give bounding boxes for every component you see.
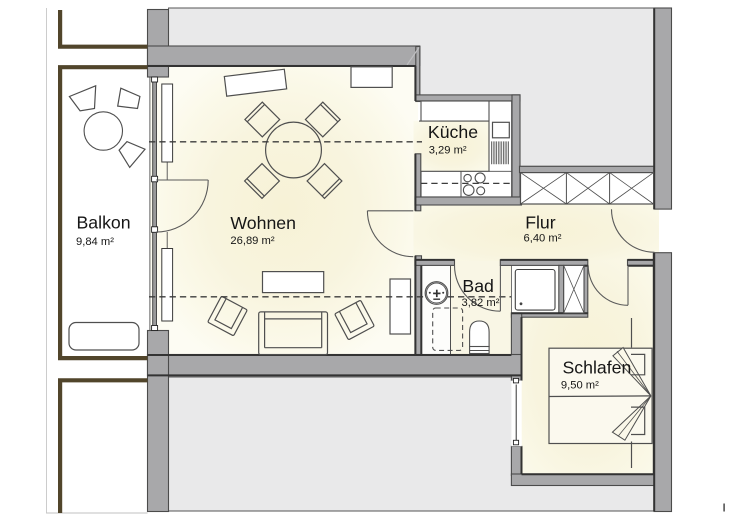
svg-text:Schlafen: Schlafen xyxy=(563,357,632,377)
svg-text:3,29 m²: 3,29 m² xyxy=(429,144,467,156)
svg-text:Balkon: Balkon xyxy=(77,213,131,233)
svg-text:Küche: Küche xyxy=(428,122,478,142)
svg-text:9,84 m²: 9,84 m² xyxy=(76,236,114,248)
svg-text:26,89 m²: 26,89 m² xyxy=(230,235,274,247)
svg-text:9,50 m²: 9,50 m² xyxy=(561,380,599,392)
svg-text:3,82 m²: 3,82 m² xyxy=(462,297,500,309)
svg-text:Flur: Flur xyxy=(525,212,556,232)
svg-text:Bad: Bad xyxy=(462,276,493,296)
svg-text:Wohnen: Wohnen xyxy=(230,213,296,233)
svg-text:6,40 m²: 6,40 m² xyxy=(524,232,562,244)
